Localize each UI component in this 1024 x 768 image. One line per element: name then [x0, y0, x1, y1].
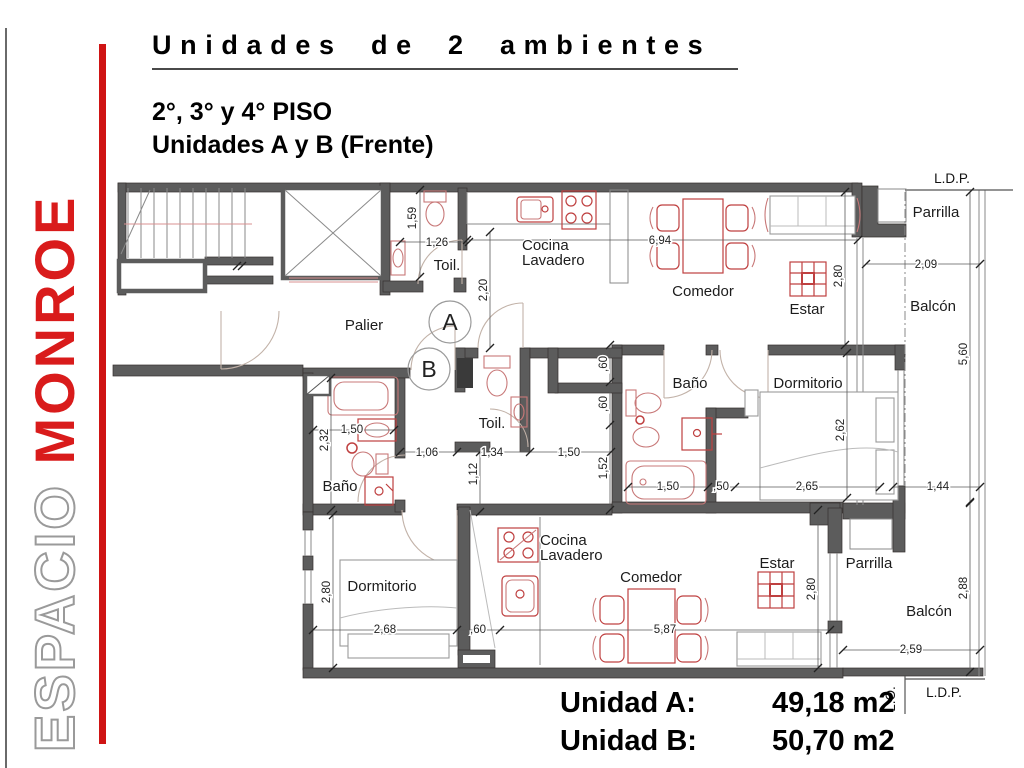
dimension-label: 2,09 [915, 259, 937, 271]
dimension-label: 2,59 [900, 644, 922, 656]
dining-table-b [593, 589, 708, 663]
room-label: Baño [672, 375, 707, 392]
room-label: Lavadero [540, 547, 603, 564]
dimension-label: 1,06 [416, 447, 438, 459]
dimension-label: 1,34 [481, 447, 504, 459]
room-label: Dormitorio [773, 375, 842, 392]
room-label: Lavadero [522, 252, 585, 269]
dimension-label: 2,80 [806, 578, 818, 600]
kitchen-a-fixtures [517, 191, 596, 229]
kitchen-b-fixtures [498, 528, 538, 616]
dimension-label: 6,94 [649, 235, 672, 247]
room-label: Parrilla [913, 204, 960, 221]
dimension-label: 1,52 [598, 457, 610, 479]
staircase [119, 188, 252, 291]
dimension-label: ,60 [598, 356, 610, 372]
unit-circle-letter: B [421, 356, 436, 382]
unit-a-area-value: 49,18 m2 [772, 684, 895, 722]
room-label: Comedor [672, 283, 734, 300]
room-label: Comedor [620, 569, 682, 586]
dimension-label: 2,88 [958, 577, 970, 599]
dimension-label: 2,32 [319, 429, 331, 451]
dimension-label: 2,65 [796, 481, 818, 493]
boundary-label: L.D.P. [926, 685, 962, 700]
vent-shaft [306, 375, 330, 395]
unit-a-area-row: Unidad A: 49,18 m2 [560, 684, 895, 722]
bed-b [340, 560, 457, 658]
unit-b-area-label: Unidad B: [560, 722, 736, 760]
dimension-label: 2,80 [833, 265, 845, 287]
dimension-label: 1,50 [341, 424, 363, 436]
room-label: Balcón [910, 298, 956, 315]
room-label: Toil. [434, 257, 461, 274]
dimension-label: 2,80 [321, 581, 333, 603]
sofa-b [737, 632, 821, 666]
area-summary: Unidad A: 49,18 m2 Unidad B: 50,70 m2 [560, 684, 895, 760]
room-label: Baño [322, 478, 357, 495]
dimension-label: 2,20 [478, 279, 490, 301]
unit-b-area-value: 50,70 m2 [772, 722, 895, 760]
room-label: Palier [345, 317, 383, 334]
unit-a-area-label: Unidad A: [560, 684, 736, 722]
estar-b-table [758, 572, 794, 608]
dimension-label: 5,60 [958, 343, 970, 365]
room-label: Estar [759, 555, 794, 572]
unit-circle-letter: A [442, 309, 458, 335]
dimension-label: ,50 [713, 481, 729, 493]
room-label: Toil. [479, 415, 506, 432]
room-label: Parrilla [846, 555, 893, 572]
unit-b-area-row: Unidad B: 50,70 m2 [560, 722, 895, 760]
room-label: Dormitorio [347, 578, 416, 595]
dimension-label: 2,68 [374, 624, 396, 636]
dimension-label: 1,26 [426, 237, 448, 249]
estar-a-table [790, 262, 826, 296]
bed-a [745, 390, 898, 500]
sofa-a [765, 196, 860, 234]
boundary-label: L.D.P. [934, 171, 970, 186]
dimension-label: 5,87 [654, 624, 676, 636]
dimension-label: ,60 [470, 624, 486, 636]
dimension-label: 1,50 [657, 481, 679, 493]
floor-plan: Toil.CocinaLavaderoComedorEstarParrillaB… [0, 0, 1024, 768]
room-label: Balcón [906, 603, 952, 620]
dimension-label: ,60 [598, 396, 610, 412]
dimension-label: 1,50 [558, 447, 580, 459]
room-label: Estar [789, 301, 824, 318]
dimension-label: 1,12 [468, 463, 480, 485]
dimension-label: 1,44 [927, 481, 950, 493]
dimension-label: 2,62 [835, 419, 847, 441]
dimension-label: 1,59 [407, 207, 419, 229]
elevator [283, 188, 383, 282]
